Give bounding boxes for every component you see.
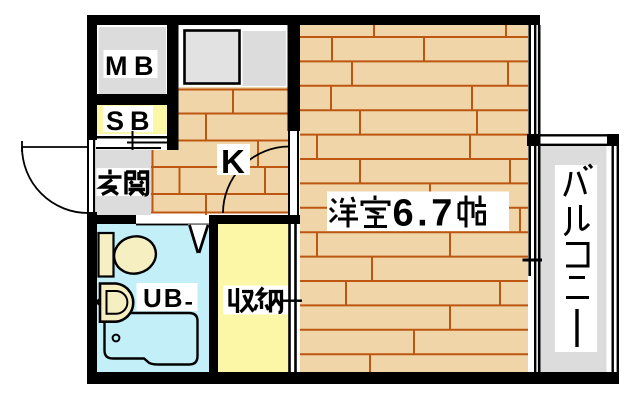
svg-text:MB: MB	[105, 51, 160, 81]
svg-text:K: K	[221, 143, 245, 180]
svg-text:UB: UB	[143, 283, 185, 313]
svg-text:6.7: 6.7	[393, 193, 456, 235]
svg-text:SB: SB	[106, 106, 156, 136]
